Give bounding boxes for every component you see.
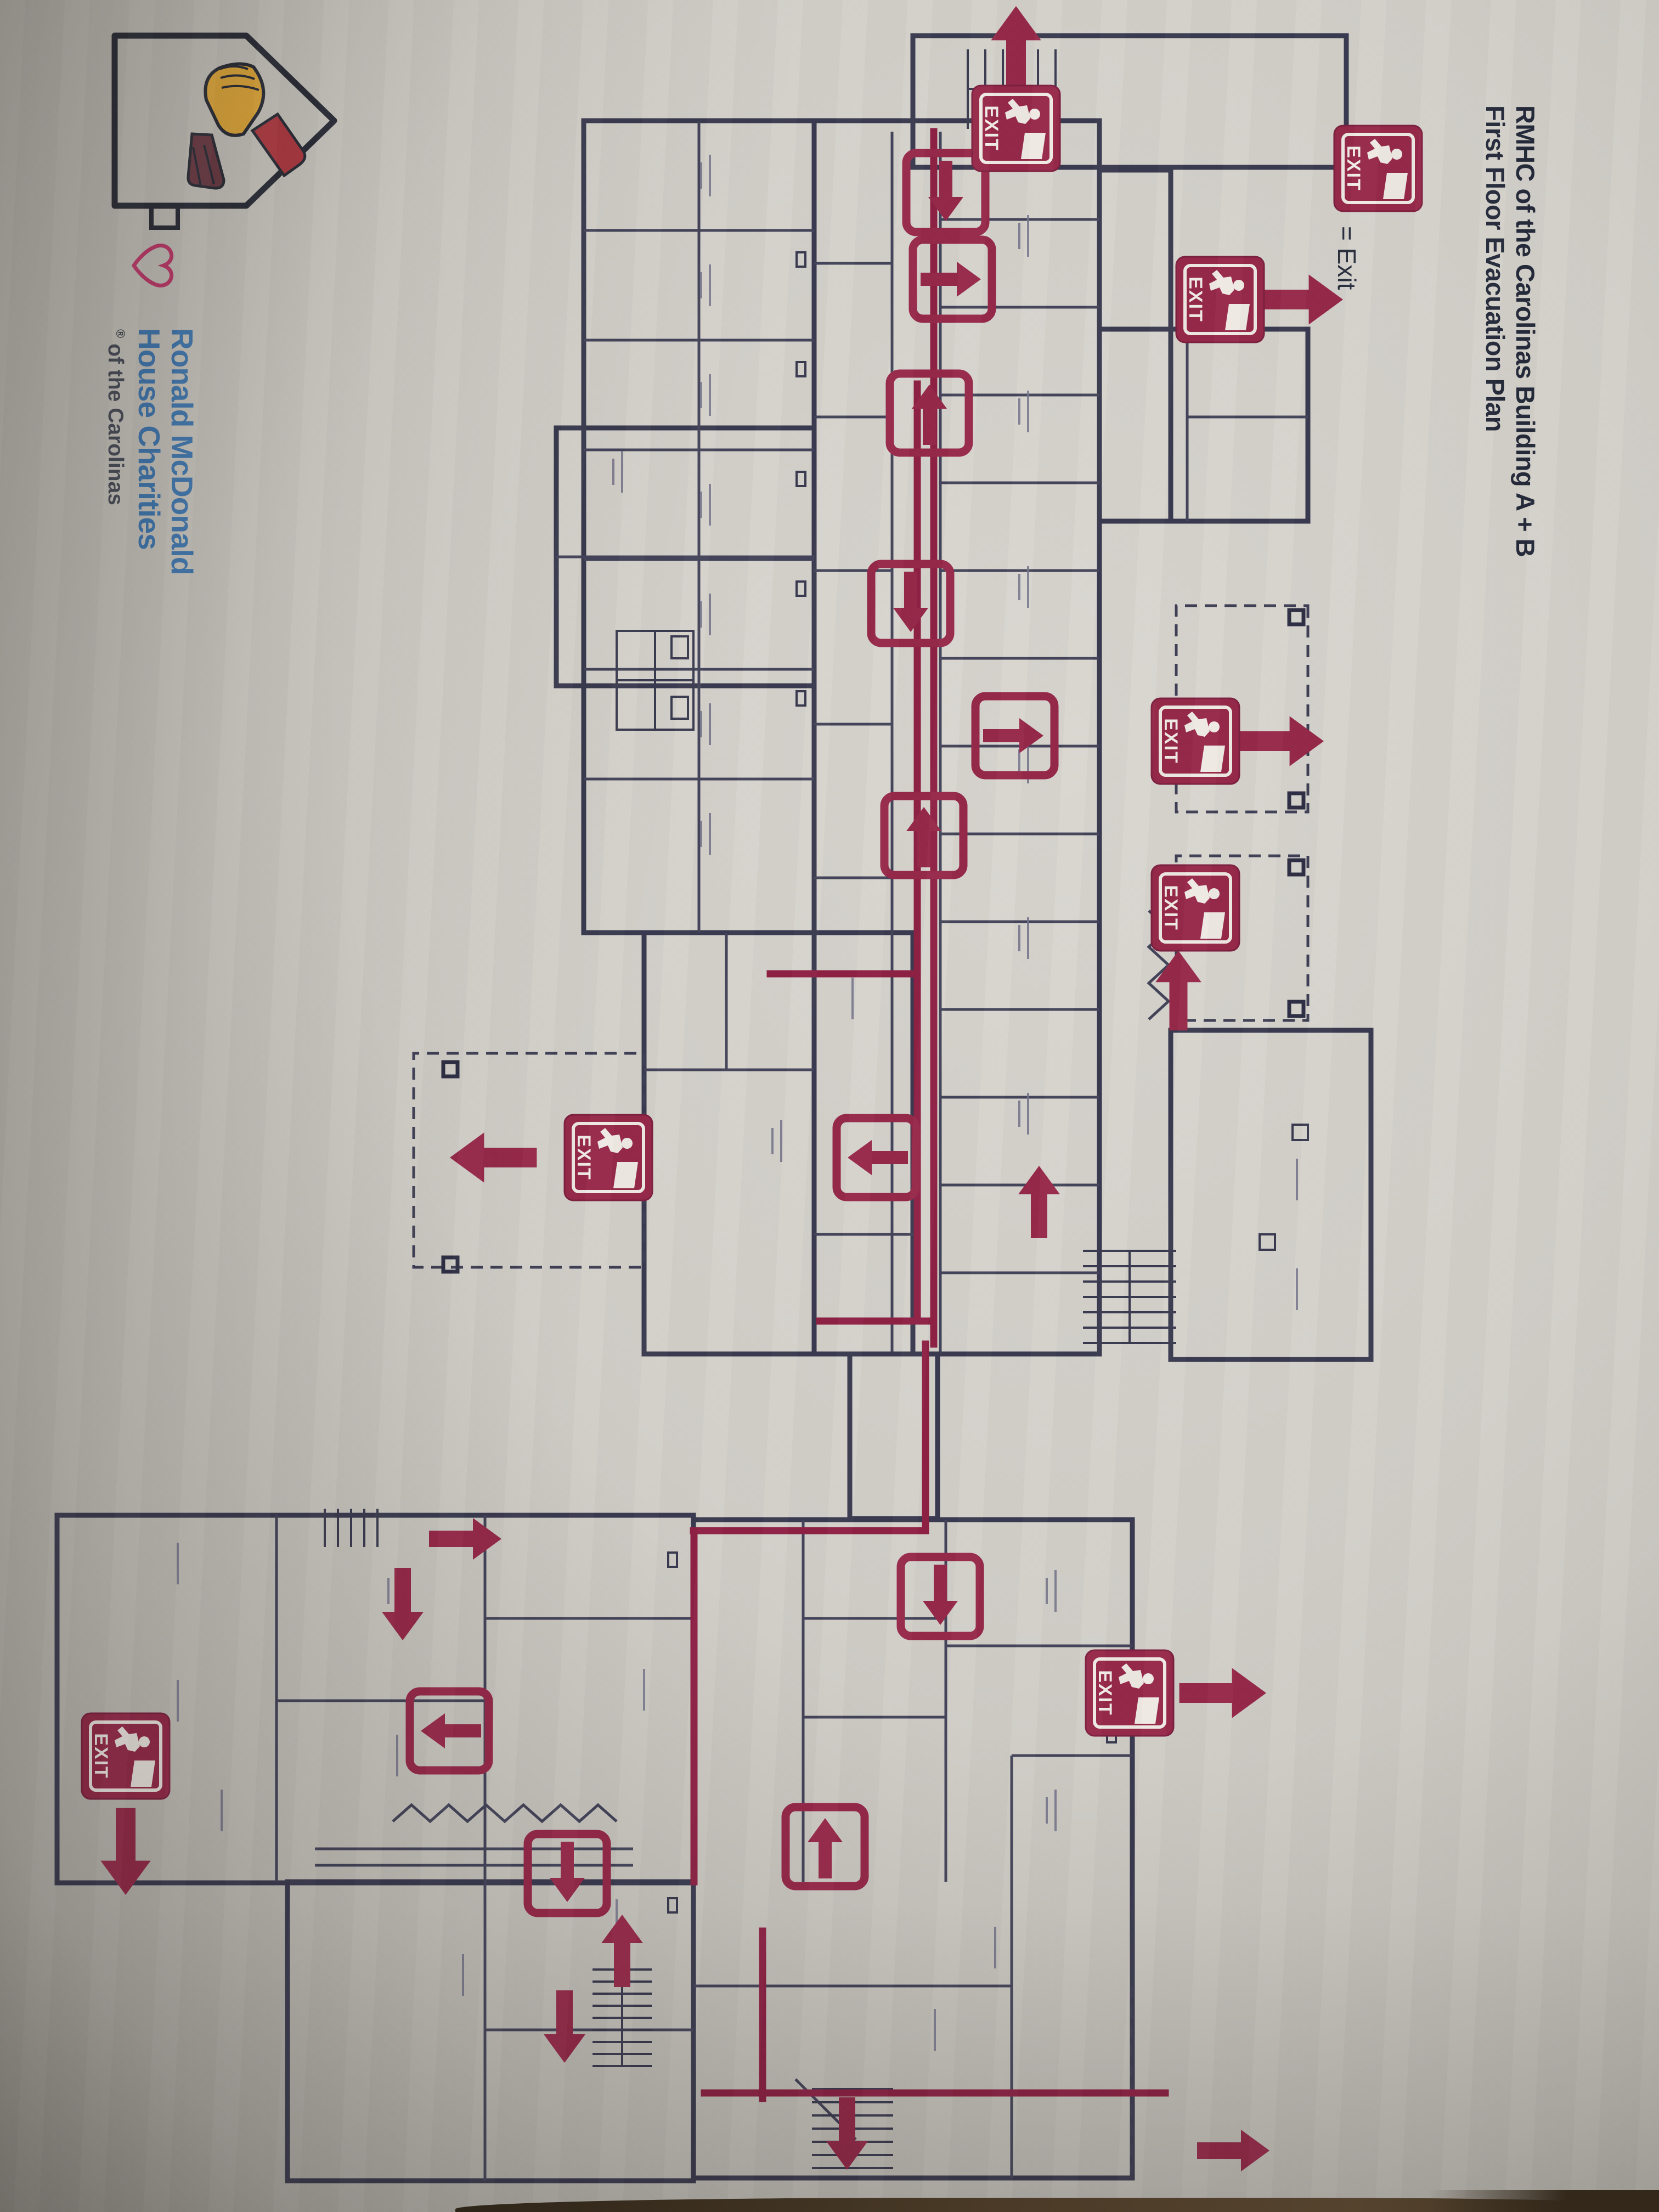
room-label-marks: [178, 155, 1297, 2051]
running-man-icon: [622, 1138, 633, 1149]
page-title: RMHC of the Carolinas Building A + B Fir…: [1480, 105, 1541, 557]
logo-wordmark: Ronald McDonald House Charities: [133, 328, 199, 574]
exit-arrow-up: [1180, 1668, 1266, 1718]
door-icon: [1200, 746, 1225, 772]
floor-plan-drawing: EXIT EXIT EXIT EXIT: [0, 0, 1659, 2212]
door-icon: [131, 1760, 155, 1787]
page-title-line1: RMHC of the Carolinas Building A + B: [1510, 105, 1541, 557]
exit-sign-label: EXIT: [1160, 718, 1181, 764]
boxed-arrow-up: [975, 696, 1054, 775]
logo-region-line: ®of the Carolinas: [103, 329, 127, 505]
photo-of-evacuation-plan: RMHC of the Carolinas Building A + B Fir…: [0, 0, 1659, 2212]
exit-sign-label: EXIT: [1185, 276, 1206, 323]
bathroom-fixtures: [797, 252, 805, 706]
door-icon: [1021, 133, 1046, 159]
kitchen-fixtures: [617, 631, 693, 730]
door-icon: [1383, 173, 1408, 199]
building-b: [57, 1509, 1132, 2181]
exit-sign-label: EXIT: [981, 105, 1002, 151]
running-man-icon: [1143, 1673, 1154, 1684]
boxed-arrow-right: [901, 1557, 980, 1636]
evac-arrow-left: [1018, 1166, 1060, 1238]
evac-arrow-up: [429, 1518, 501, 1560]
legend-exit-sign: EXIT: [1334, 126, 1422, 211]
boxed-arrow-left: [884, 796, 963, 875]
exit-sign-label: EXIT: [1160, 885, 1181, 931]
boxed-arrow-down: [410, 1691, 489, 1770]
boxed-arrow-right: [871, 564, 950, 643]
running-man-icon: [1209, 721, 1220, 732]
exit-sign: EXIT: [972, 86, 1060, 171]
running-man-icon: [1233, 280, 1244, 291]
logo-sleeve-dark-icon: [188, 134, 224, 188]
running-man-icon: [1209, 888, 1220, 899]
legend: EXIT = Exit: [1333, 126, 1422, 290]
exit-sign-label: EXIT: [91, 1733, 111, 1779]
exit-sign-label: EXIT: [1094, 1670, 1115, 1716]
exit-arrow-up: [1256, 274, 1343, 324]
logo-sleeve-red-icon: [252, 114, 305, 176]
boxed-arrow-left: [786, 1807, 865, 1886]
exit-sign: EXIT: [1086, 1650, 1173, 1736]
evac-arrow-up: [1197, 2130, 1269, 2171]
boxed-arrow-right: [528, 1834, 607, 1913]
exit-arrow-left: [1155, 951, 1201, 1030]
exit-sign: EXIT: [82, 1713, 170, 1799]
evac-arrow-right: [544, 1990, 585, 2063]
logo-chimney-icon: [151, 206, 178, 228]
door-icon: [1200, 912, 1225, 939]
running-man-icon: [1029, 109, 1040, 120]
running-man-icon: [139, 1736, 150, 1747]
door-icon: [613, 1162, 638, 1188]
page-title-line2: First Floor Evacuation Plan: [1480, 105, 1510, 557]
door-icon: [1225, 304, 1250, 330]
exit-sign-label: EXIT: [573, 1135, 594, 1181]
rmhc-logo: [115, 36, 334, 285]
exit-sign: EXIT: [1152, 698, 1239, 784]
exit-sign: EXIT: [565, 1115, 652, 1200]
door-icon: [1135, 1697, 1159, 1724]
logo-region-text: of the Carolinas: [104, 343, 127, 505]
logo-heart-icon: [134, 246, 172, 286]
exit-sign: EXIT: [1176, 257, 1264, 342]
evac-arrow-left: [601, 1915, 643, 1987]
exit-sign: EXIT: [1152, 865, 1239, 951]
boxed-arrow-down: [837, 1118, 916, 1197]
running-man-icon: [1391, 149, 1402, 160]
logo-name-line1: Ronald McDonald: [166, 328, 199, 574]
evacuation-plan-document: RMHC of the Carolinas Building A + B Fir…: [0, 0, 1659, 2212]
exit-arrow-up: [1237, 716, 1324, 766]
registered-mark: ®: [114, 329, 127, 338]
exit-arrow-down: [450, 1132, 537, 1182]
exit-arrow-left: [991, 6, 1041, 93]
boxed-arrow-left: [890, 374, 969, 453]
logo-name-line2: House Charities: [133, 328, 166, 574]
table-edge-corner: [1429, 2190, 1659, 2212]
legend-label: = Exit: [1333, 226, 1361, 290]
exit-sign-label: EXIT: [1343, 145, 1364, 191]
evac-arrow-right: [826, 2097, 868, 2170]
